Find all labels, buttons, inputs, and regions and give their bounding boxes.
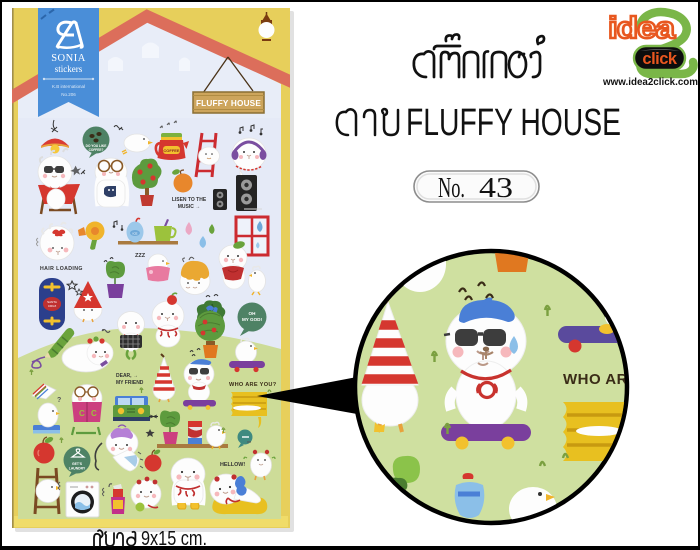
svg-text:COFFEE: COFFEE [163,148,180,153]
svg-text:WHO ARE YOU?: WHO ARE YOU? [229,382,277,388]
svg-text:FLUFFY HOUSE: FLUFFY HOUSE [196,99,261,108]
svg-text:K.B international: K.B international [52,84,85,89]
svg-text:C: C [79,409,85,418]
svg-text:GET'S: GET'S [72,462,83,466]
svg-text:No.: No. [438,173,465,204]
svg-text:idea: idea [608,10,676,45]
svg-text:MY FRIEND: MY FRIEND [116,380,144,386]
svg-text:No.206: No.206 [61,92,76,97]
svg-text:FLUFFY HOUSE: FLUFFY HOUSE [406,102,621,144]
svg-text:click: click [642,50,678,68]
svg-text:OH: OH [249,311,257,316]
svg-text:CRUZ: CRUZ [48,304,56,308]
svg-text:43: 43 [479,173,513,204]
svg-text:MUSIC →: MUSIC → [178,204,201,210]
svg-text:C: C [91,409,97,418]
svg-text:HAIR LOADING: HAIR LOADING [40,266,83,272]
svg-text:HELLOW!: HELLOW! [220,462,245,468]
svg-text:www.idea2click.com: www.idea2click.com [602,76,698,88]
svg-text:ZZZ: ZZZ [135,253,146,259]
svg-text:COFFEE?: COFFEE? [89,148,104,152]
svg-text:9x15 cm.: 9x15 cm. [141,528,207,550]
svg-text:LAUNDRY: LAUNDRY [69,466,86,470]
svg-text:stickers: stickers [55,64,83,74]
svg-text:DEAR, →: DEAR, → [116,373,138,379]
svg-text:MY GOD!: MY GOD! [242,317,263,322]
svg-text:LISEN TO THE: LISEN TO THE [172,197,207,203]
svg-text:ICE: ICE [132,232,137,236]
svg-text:?: ? [57,397,61,404]
svg-text:SONIA: SONIA [51,53,86,64]
